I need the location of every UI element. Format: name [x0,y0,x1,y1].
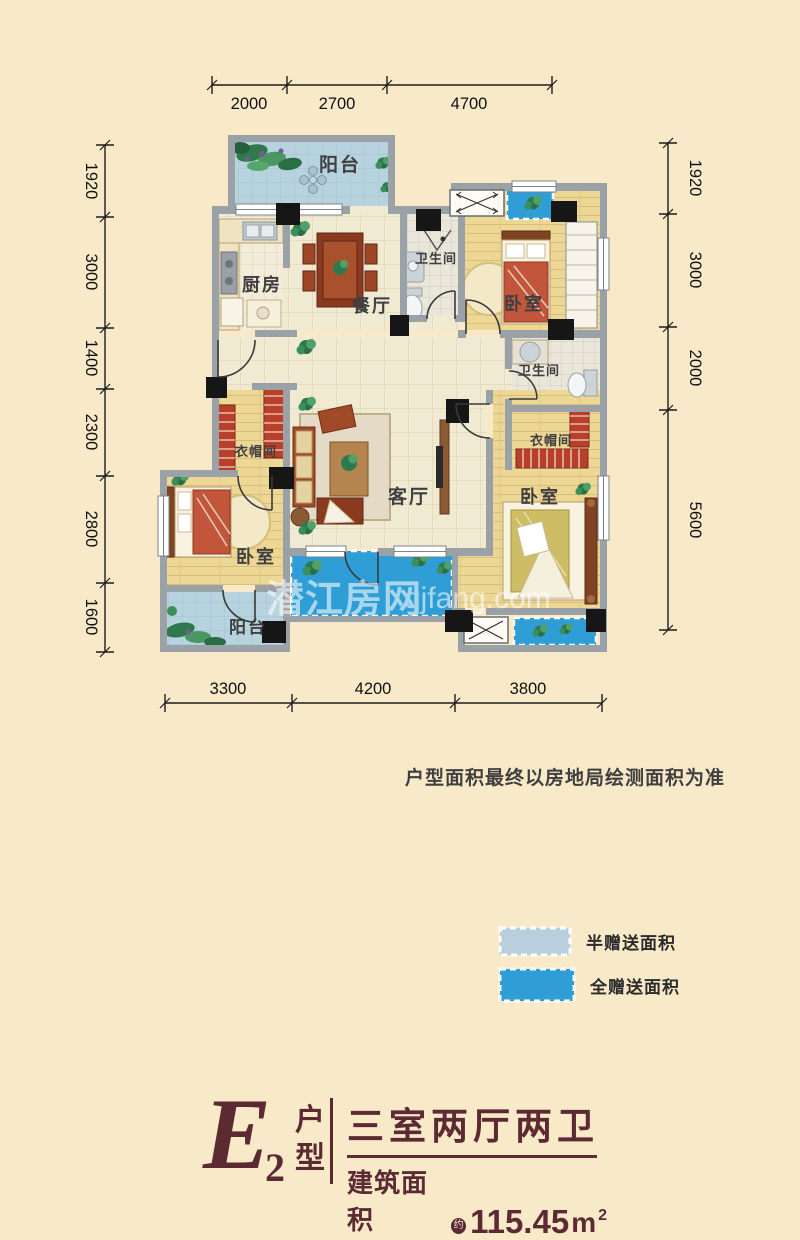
dim-top-1: 2000 [231,95,268,113]
legend-label-full-gift: 全赠送面积 [590,973,680,998]
room-label-bedroom-right: 卧室 [520,486,560,507]
area-unit-sup: 2 [598,1209,607,1223]
room-label-closet-left: 衣帽间 [235,444,277,459]
approx-badge: 约 [451,1218,466,1234]
dim-bottom-2: 4200 [355,680,392,698]
legend-item-full-gift: 全赠送面积 [498,967,680,1003]
dim-left-3: 1400 [82,340,100,377]
dim-left-2: 3000 [82,254,100,291]
room-label-balcony-bottom: 阳台 [229,617,267,637]
room-label-balcony-top: 阳台 [319,153,361,176]
room-label-living: 客厅 [388,485,430,508]
gift-area-bottom-right [514,618,596,645]
layout-name: 三室两厅两卫 [347,1096,607,1150]
unit-letter: E [203,1088,271,1182]
floor-plan-image: 阳台 厨房 餐厅 卫生间 卧室 卫生间 衣帽间 卧室 客厅 衣帽间 卧室 阳台 … [0,0,800,1220]
room-label-dining: 餐厅 [351,295,392,316]
dim-left-6: 1600 [82,599,100,636]
area-line: 建筑面积 约 115.45 m 2 [347,1163,607,1237]
legend-item-half-gift: 半赠送面积 [498,926,676,957]
room-label-bedroom-left: 卧室 [236,546,276,567]
dim-left-4: 2300 [82,414,100,451]
watermark-brand: 潜江房网 [266,579,422,621]
unit-type-char-top: 户 [295,1102,325,1140]
room-label-closet-right: 衣帽间 [530,433,572,448]
watermark-site: qjfang.com [404,582,551,615]
room-label-bedroom-top-right: 卧室 [504,293,544,314]
watermark: 潜江房网 qjfang.com [266,579,551,621]
dim-left-5: 2800 [82,511,100,548]
unit-type-char-bottom: 型 [295,1140,325,1178]
dim-left-1: 1920 [82,163,100,200]
dim-right-2: 3000 [686,252,704,289]
disclaimer-text: 户型面积最终以房地局绘测面积为准 [405,763,725,790]
legend-swatch-half-gift [498,926,572,957]
room-label-kitchen: 厨房 [242,274,282,295]
area-label: 建筑面积 [347,1163,447,1237]
dim-right-3: 2000 [686,350,704,387]
dim-bottom-3: 3800 [510,680,547,698]
area-unit: m [571,1209,596,1237]
room-label-bathroom-top: 卫生间 [415,251,457,266]
room-label-bathroom-right: 卫生间 [518,363,560,378]
area-value: 115.45 [470,1207,569,1237]
unit-number: 2 [265,1144,285,1191]
unit-type-label: 户 型 [295,1102,325,1178]
balcony-door-opening [350,206,388,214]
flue-icon [450,190,504,216]
title-divider [330,1098,333,1184]
legend-label-half-gift: 半赠送面积 [586,929,676,954]
unit-title-block: E 2 户 型 三室两厅两卫 建筑面积 约 115.45 m 2 [203,1096,623,1192]
dim-right-4: 5600 [686,502,704,539]
dim-right-1: 1920 [686,160,704,197]
legend-swatch-full-gift [498,967,576,1003]
title-rule [347,1155,597,1158]
dim-top-3: 4700 [451,95,488,113]
dim-bottom-1: 3300 [210,680,247,698]
dim-top-2: 2700 [319,95,356,113]
